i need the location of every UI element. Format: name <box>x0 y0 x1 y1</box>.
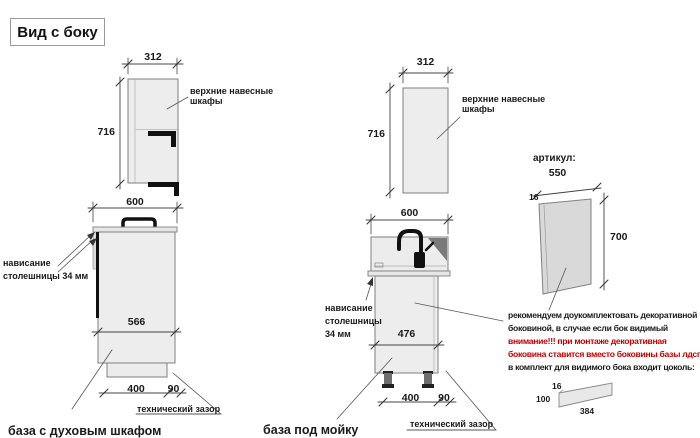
mount-bracket <box>174 187 179 196</box>
leg-foot <box>382 384 394 388</box>
mid-wall-cabinet-drawing <box>386 67 460 198</box>
wall-cabinet-body <box>403 88 448 193</box>
plinth-drawing <box>559 383 612 407</box>
dim-716-mid-wall: 716 <box>362 128 385 140</box>
dim-tick <box>593 183 601 191</box>
arrowhead <box>367 277 373 286</box>
label-techgap-mid: технический зазор <box>410 419 493 429</box>
leg <box>384 373 392 385</box>
label-articul: артикул: <box>533 153 576 165</box>
leg <box>424 373 432 385</box>
leg-foot <box>422 384 434 388</box>
caption-oven-base: база с духовым шкафом <box>8 424 161 438</box>
plinth-profile <box>107 363 167 377</box>
caption-leader <box>337 358 392 419</box>
dim-90-mid: 90 <box>436 392 452 404</box>
oven-door-edge <box>96 232 99 318</box>
dim-600-mid-base: 600 <box>371 207 448 219</box>
worktop <box>93 227 177 232</box>
dim-16-plinth: 16 <box>552 382 561 392</box>
mount-bracket <box>148 131 176 136</box>
dim-line <box>533 188 601 196</box>
dim-312-left-wall: 312 <box>128 51 178 63</box>
dim-16-panel: 16 <box>529 193 538 203</box>
dim-476: 476 <box>375 328 438 340</box>
note-warning-line-2: боковина ставится вместо боковины базы л… <box>508 350 700 360</box>
left-wall-cabinet-drawing <box>116 58 188 196</box>
oven-handle <box>123 219 155 227</box>
dim-400-mid: 400 <box>383 392 438 404</box>
worktop <box>368 271 450 276</box>
note-line-2: боковиной, в случае если бок видимый <box>508 324 668 334</box>
mount-bracket <box>148 182 179 187</box>
caption-sink-base: база под мойку <box>263 423 358 437</box>
label-upper-cabinets-left: верхние навесные шкафы <box>190 86 273 107</box>
dim-90-left: 90 <box>165 383 182 395</box>
dim-600-left-base: 600 <box>93 196 177 208</box>
dim-550: 550 <box>530 167 585 179</box>
dim-716-left-wall: 716 <box>92 126 115 138</box>
label-overhang-mid: нависание столешницы 34 мм <box>325 302 382 341</box>
faucet-body <box>414 252 425 268</box>
side-view-drawing: Вид с боку 312 716 верхние навесные шкаф… <box>0 0 700 438</box>
decor-panel <box>539 199 591 294</box>
plinth-bar <box>559 383 612 407</box>
note-line-1: рекомендуем доукомплектовать декоративно… <box>508 311 697 321</box>
dim-700: 700 <box>610 231 628 243</box>
label-techgap-left: технический зазор <box>137 404 220 414</box>
base-cabinet-body <box>98 232 175 363</box>
dim-384-plinth: 384 <box>576 407 598 417</box>
caption-leader <box>72 350 112 409</box>
dim-400-left: 400 <box>104 383 168 395</box>
dim-566: 566 <box>98 316 175 328</box>
note-warning-line-1: внимание!!! при монтаже декоративная <box>508 337 667 347</box>
mount-bracket <box>171 136 176 147</box>
dim-100-plinth: 100 <box>536 395 550 405</box>
label-upper-cabinets-mid: верхние навесные шкафы <box>462 94 545 115</box>
base-cabinet-body <box>375 276 438 373</box>
decor-panel-drawing <box>533 183 608 310</box>
page-title: Вид с боку <box>10 18 105 46</box>
dim-312-mid-wall: 312 <box>403 56 448 68</box>
note-line-3: в комплект для видимого бока входит цоко… <box>508 363 695 373</box>
label-overhang-left: нависание столешницы 34 мм <box>3 257 88 283</box>
